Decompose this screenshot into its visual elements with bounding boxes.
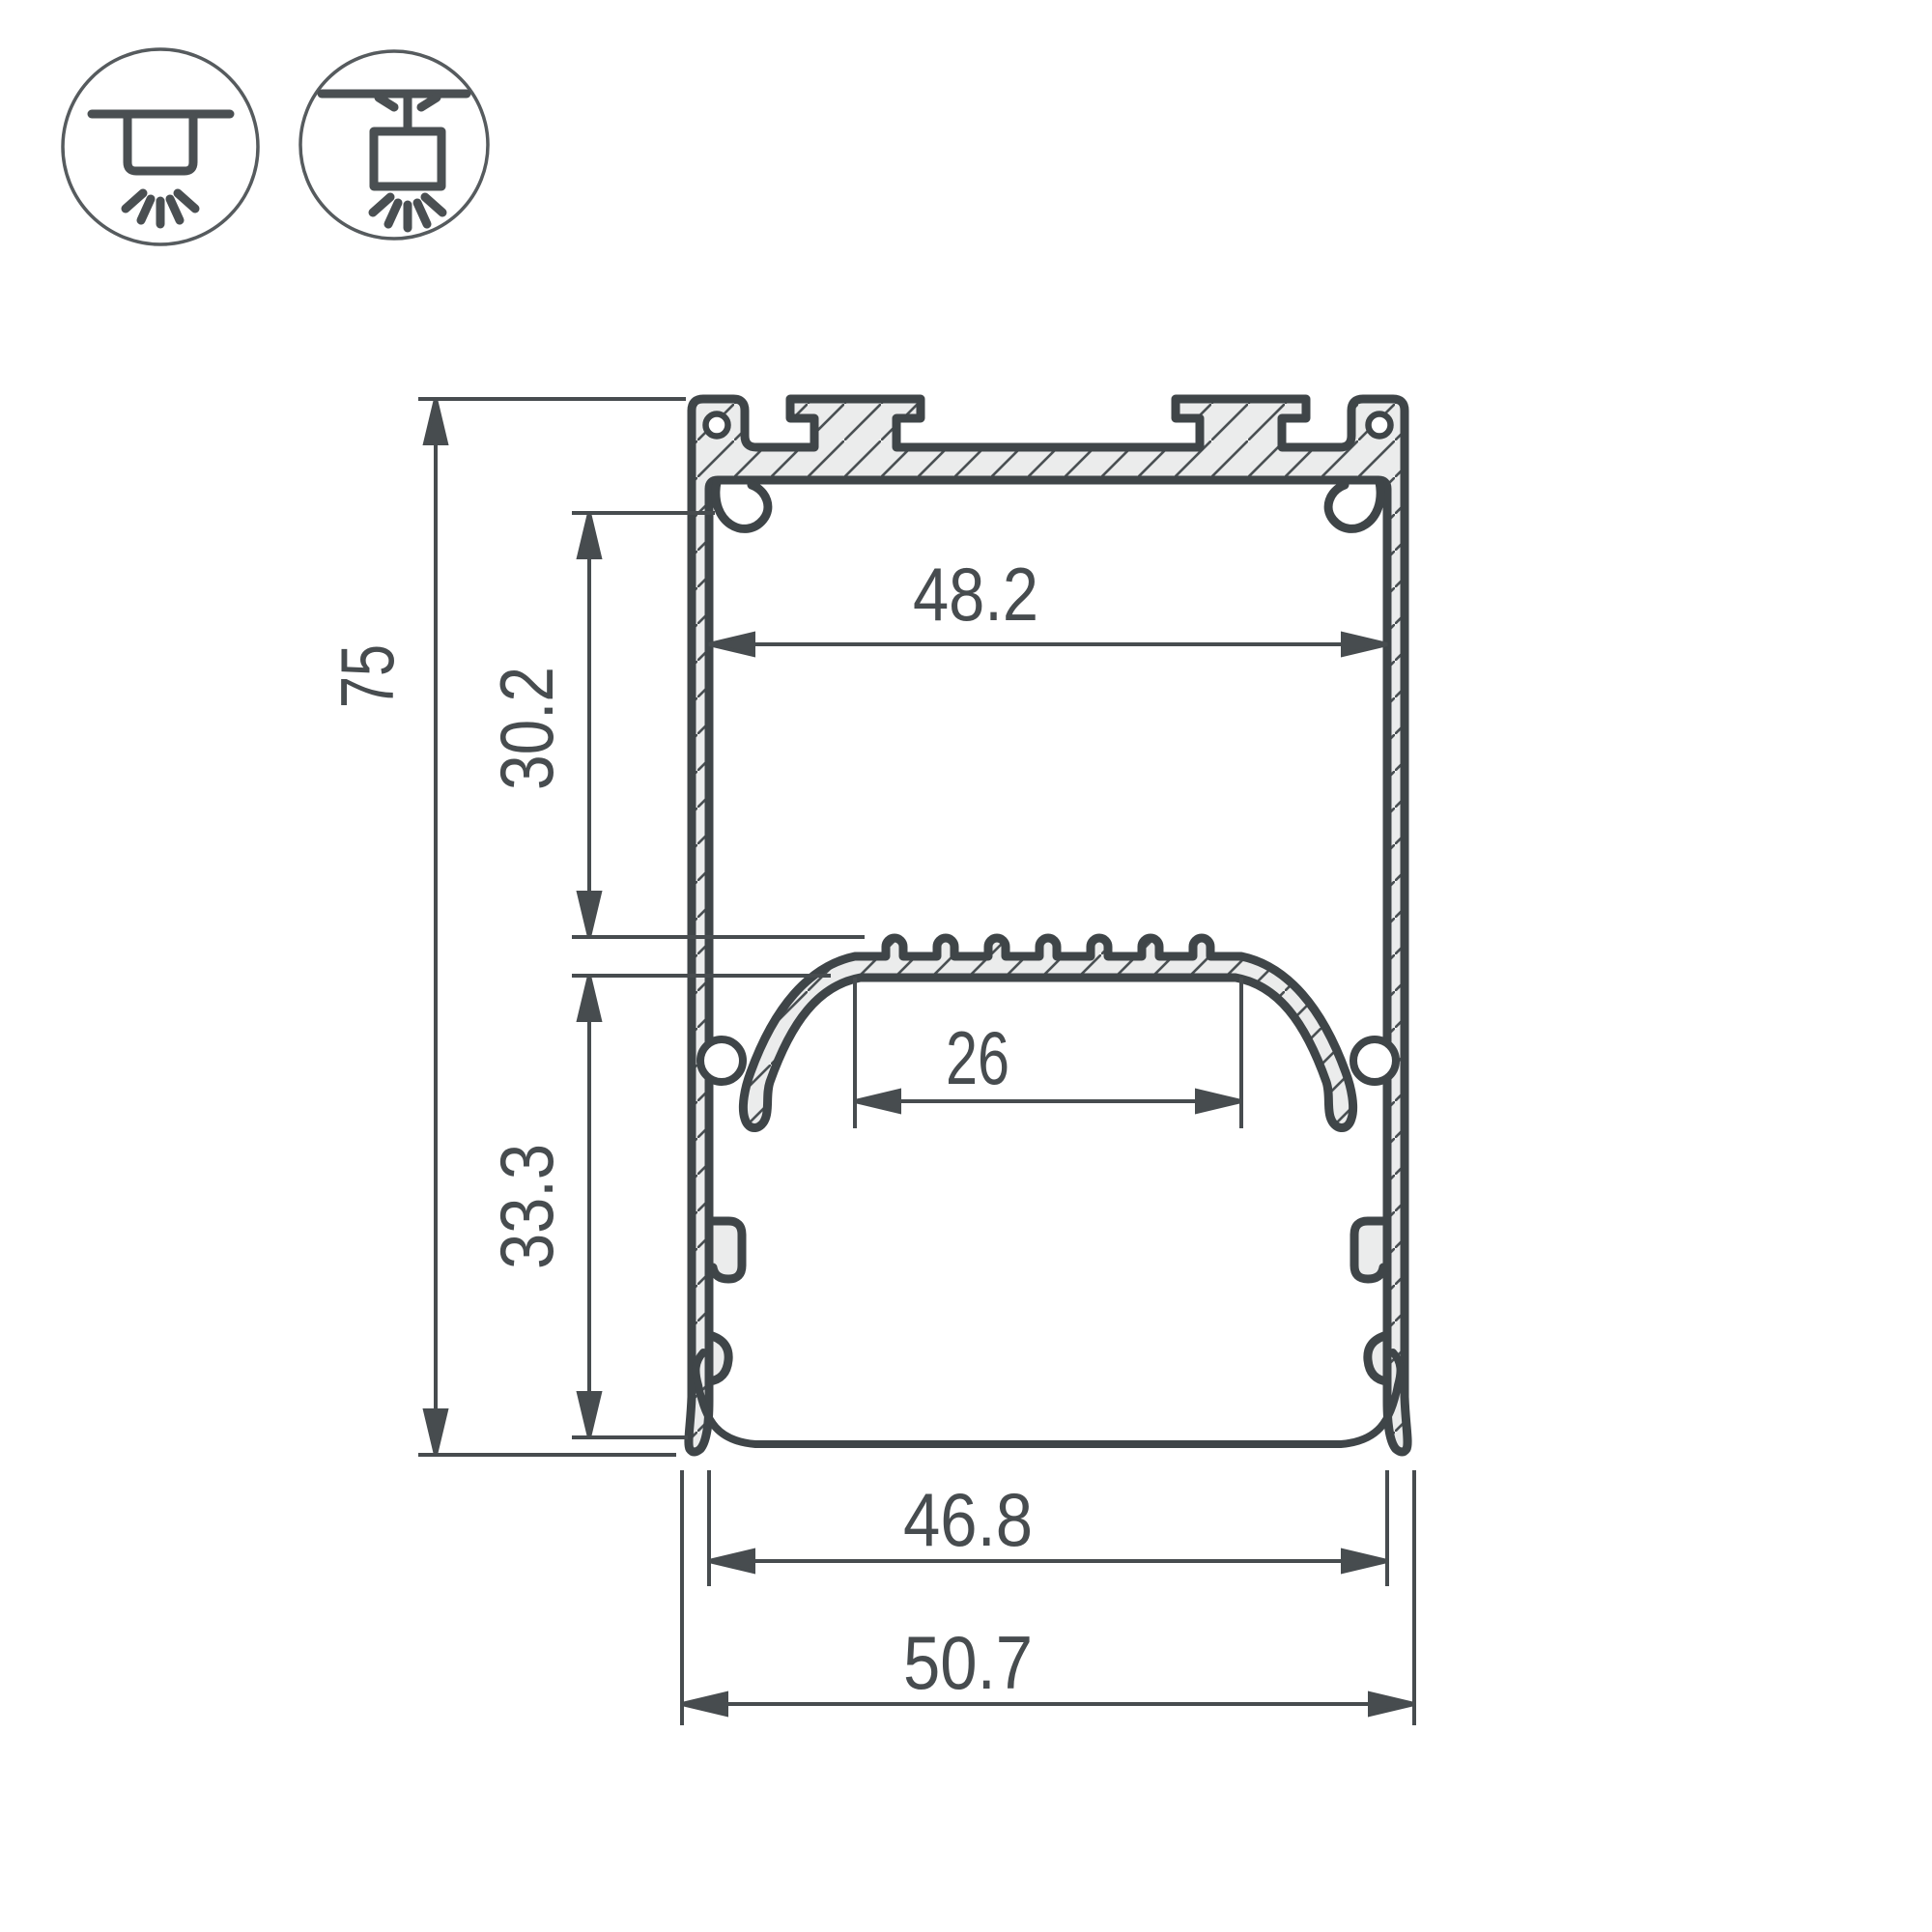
diffuser-clip-right — [1354, 1221, 1387, 1279]
profile-cross-section-drawing: 75 30.2 33.3 48.2 26 46.8 50.7 — [0, 0, 1932, 1932]
surface-mount-icon — [63, 49, 258, 244]
end-cap-screw-port-right — [1369, 414, 1391, 437]
technical-drawing-page: 75 30.2 33.3 48.2 26 46.8 50.7 — [0, 0, 1932, 1932]
label-overall-height: 75 — [325, 644, 410, 708]
suspension-hook-left — [716, 482, 768, 528]
label-lower-section-depth: 33.3 — [484, 1144, 569, 1269]
label-inner-width-bottom: 46.8 — [903, 1477, 1033, 1562]
dimension-lower-section-depth — [579, 976, 600, 1437]
profile-body — [689, 399, 1407, 1452]
dimension-overall-width — [682, 1693, 1414, 1715]
dimension-inner-width-top — [709, 634, 1387, 655]
suspended-mount-icon — [300, 51, 488, 239]
dimension-overall-height — [425, 399, 446, 1455]
diffuser-ledge-left — [709, 1335, 728, 1381]
profile-metal-outline — [689, 399, 1407, 1452]
label-overall-width: 50.7 — [903, 1620, 1033, 1705]
dimension-led-platform-width — [855, 1091, 1241, 1112]
label-upper-section-depth: 30.2 — [484, 667, 569, 790]
dimension-upper-section-depth — [579, 513, 600, 937]
dimension-inner-width-bottom — [709, 1550, 1387, 1572]
diffuser-clip-left — [709, 1221, 742, 1279]
suspension-hook-right — [1328, 482, 1380, 528]
screw-boss-left — [700, 1039, 743, 1082]
label-led-platform-width: 26 — [946, 1015, 1009, 1100]
screw-boss-right — [1353, 1039, 1396, 1082]
mounting-icons — [63, 49, 488, 244]
end-cap-screw-port-left — [706, 414, 728, 437]
diffuser-lens — [696, 1352, 1400, 1444]
label-inner-width-top: 48.2 — [913, 552, 1038, 637]
diffuser-ledge-right — [1368, 1335, 1387, 1381]
